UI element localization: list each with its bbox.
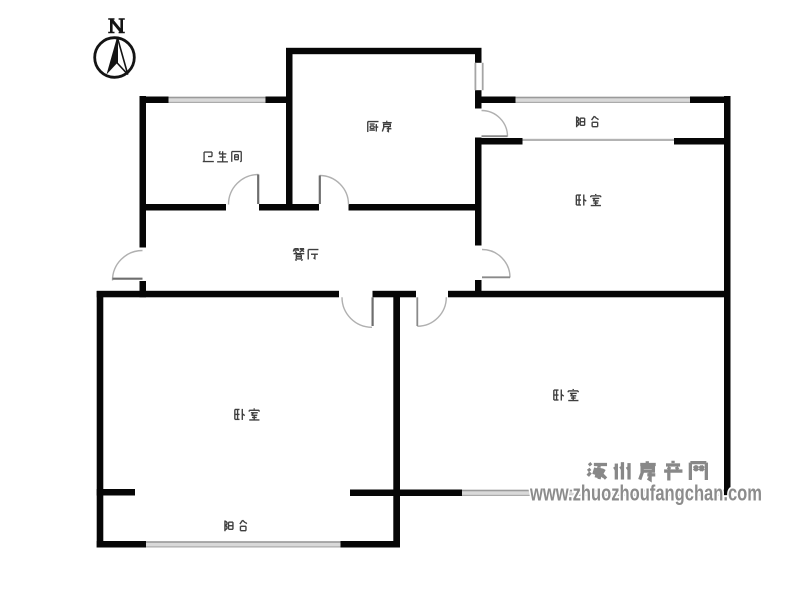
svg-text:www.zhuozhoufangchan.com: www.zhuozhoufangchan.com [529, 481, 762, 506]
